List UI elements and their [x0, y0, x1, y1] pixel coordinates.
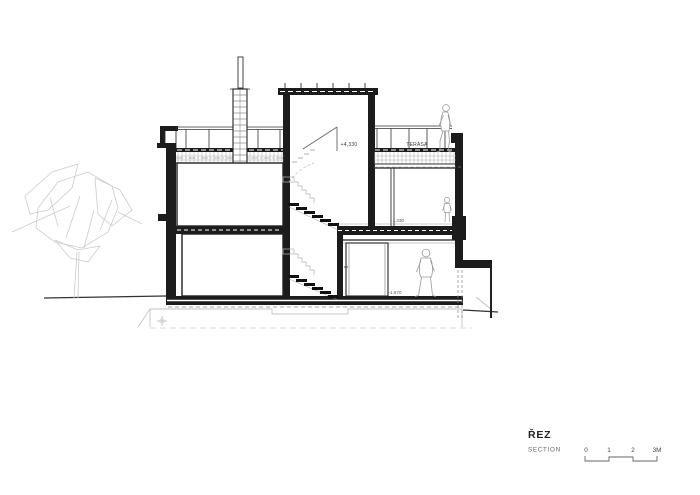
scale-bar-line	[585, 456, 657, 461]
foundation	[138, 307, 472, 328]
architectural-drawing-canvas: +4,330 TERASA +1,330 -1,670 ŘEZ SECTION …	[0, 0, 700, 495]
roof-left	[176, 127, 284, 163]
stair-tower-roof	[278, 83, 378, 95]
scale-tick-1: 1	[607, 447, 611, 454]
lower-right-room	[343, 240, 455, 296]
staircase	[283, 177, 339, 300]
section-drawing-svg: +4,330 TERASA +1,330 -1,670 ŘEZ SECTION …	[0, 0, 700, 495]
tree	[12, 164, 142, 298]
scale-bar: 0 1 2 3M	[584, 447, 661, 461]
upper-flight	[283, 177, 339, 230]
terrace-elevation-label: +4,330	[341, 142, 358, 148]
middle-floor-elevation-label: +1,330	[390, 218, 405, 223]
terrace-name-label: TERASA	[406, 142, 428, 148]
roof-railing-left	[176, 127, 283, 148]
glass-door	[346, 243, 388, 296]
upper-left-room	[177, 163, 283, 226]
survey-cross-icon	[157, 316, 167, 326]
title-block: ŘEZ SECTION	[528, 428, 561, 454]
lower-floor-elevation-label: -1,670	[388, 290, 401, 295]
scale-tick-2: 2	[631, 447, 635, 454]
lower-left-room	[182, 234, 283, 296]
person-figure-upper-room	[443, 197, 452, 222]
scale-tick-0: 0	[584, 447, 588, 454]
stair-tower-interior	[289, 127, 337, 182]
drawing-subtitle: SECTION	[528, 447, 561, 454]
person-figure-lower-room	[415, 249, 436, 296]
lower-flight	[283, 249, 339, 300]
scale-tick-3: 3M	[653, 447, 662, 454]
drawing-title: ŘEZ	[528, 428, 551, 441]
chimney-ladder	[230, 57, 250, 165]
